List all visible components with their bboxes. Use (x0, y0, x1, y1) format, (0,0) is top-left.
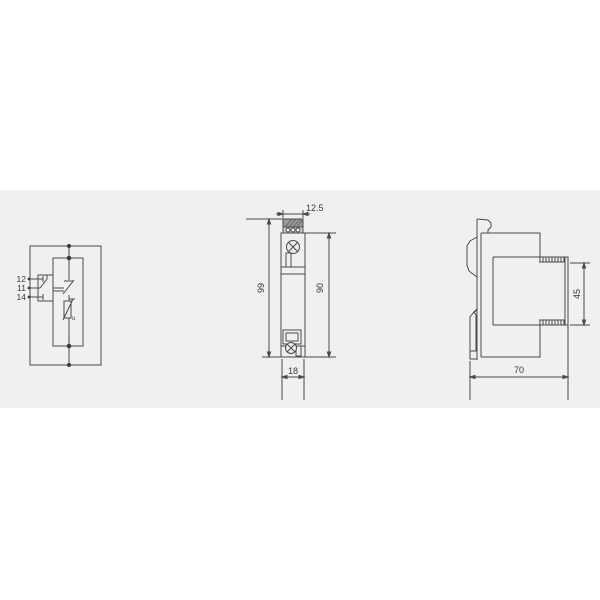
dim-text-99: 99 (256, 283, 266, 293)
dim-text-18: 18 (288, 366, 298, 376)
screw-icon (287, 241, 300, 254)
terminal-block-icon (283, 219, 303, 233)
technical-drawing: 12 11 14 u (0, 0, 600, 600)
screw-icon (286, 343, 297, 354)
dim-text-45: 45 (572, 289, 582, 299)
dim-text-12-5: 12.5 (306, 203, 324, 213)
dim-text-90: 90 (315, 283, 325, 293)
dim-text-70: 70 (514, 365, 524, 375)
terminal-label-14: 14 (17, 292, 27, 302)
drawing-canvas: 12 11 14 u (0, 0, 600, 600)
varistor-label: u (72, 316, 75, 322)
